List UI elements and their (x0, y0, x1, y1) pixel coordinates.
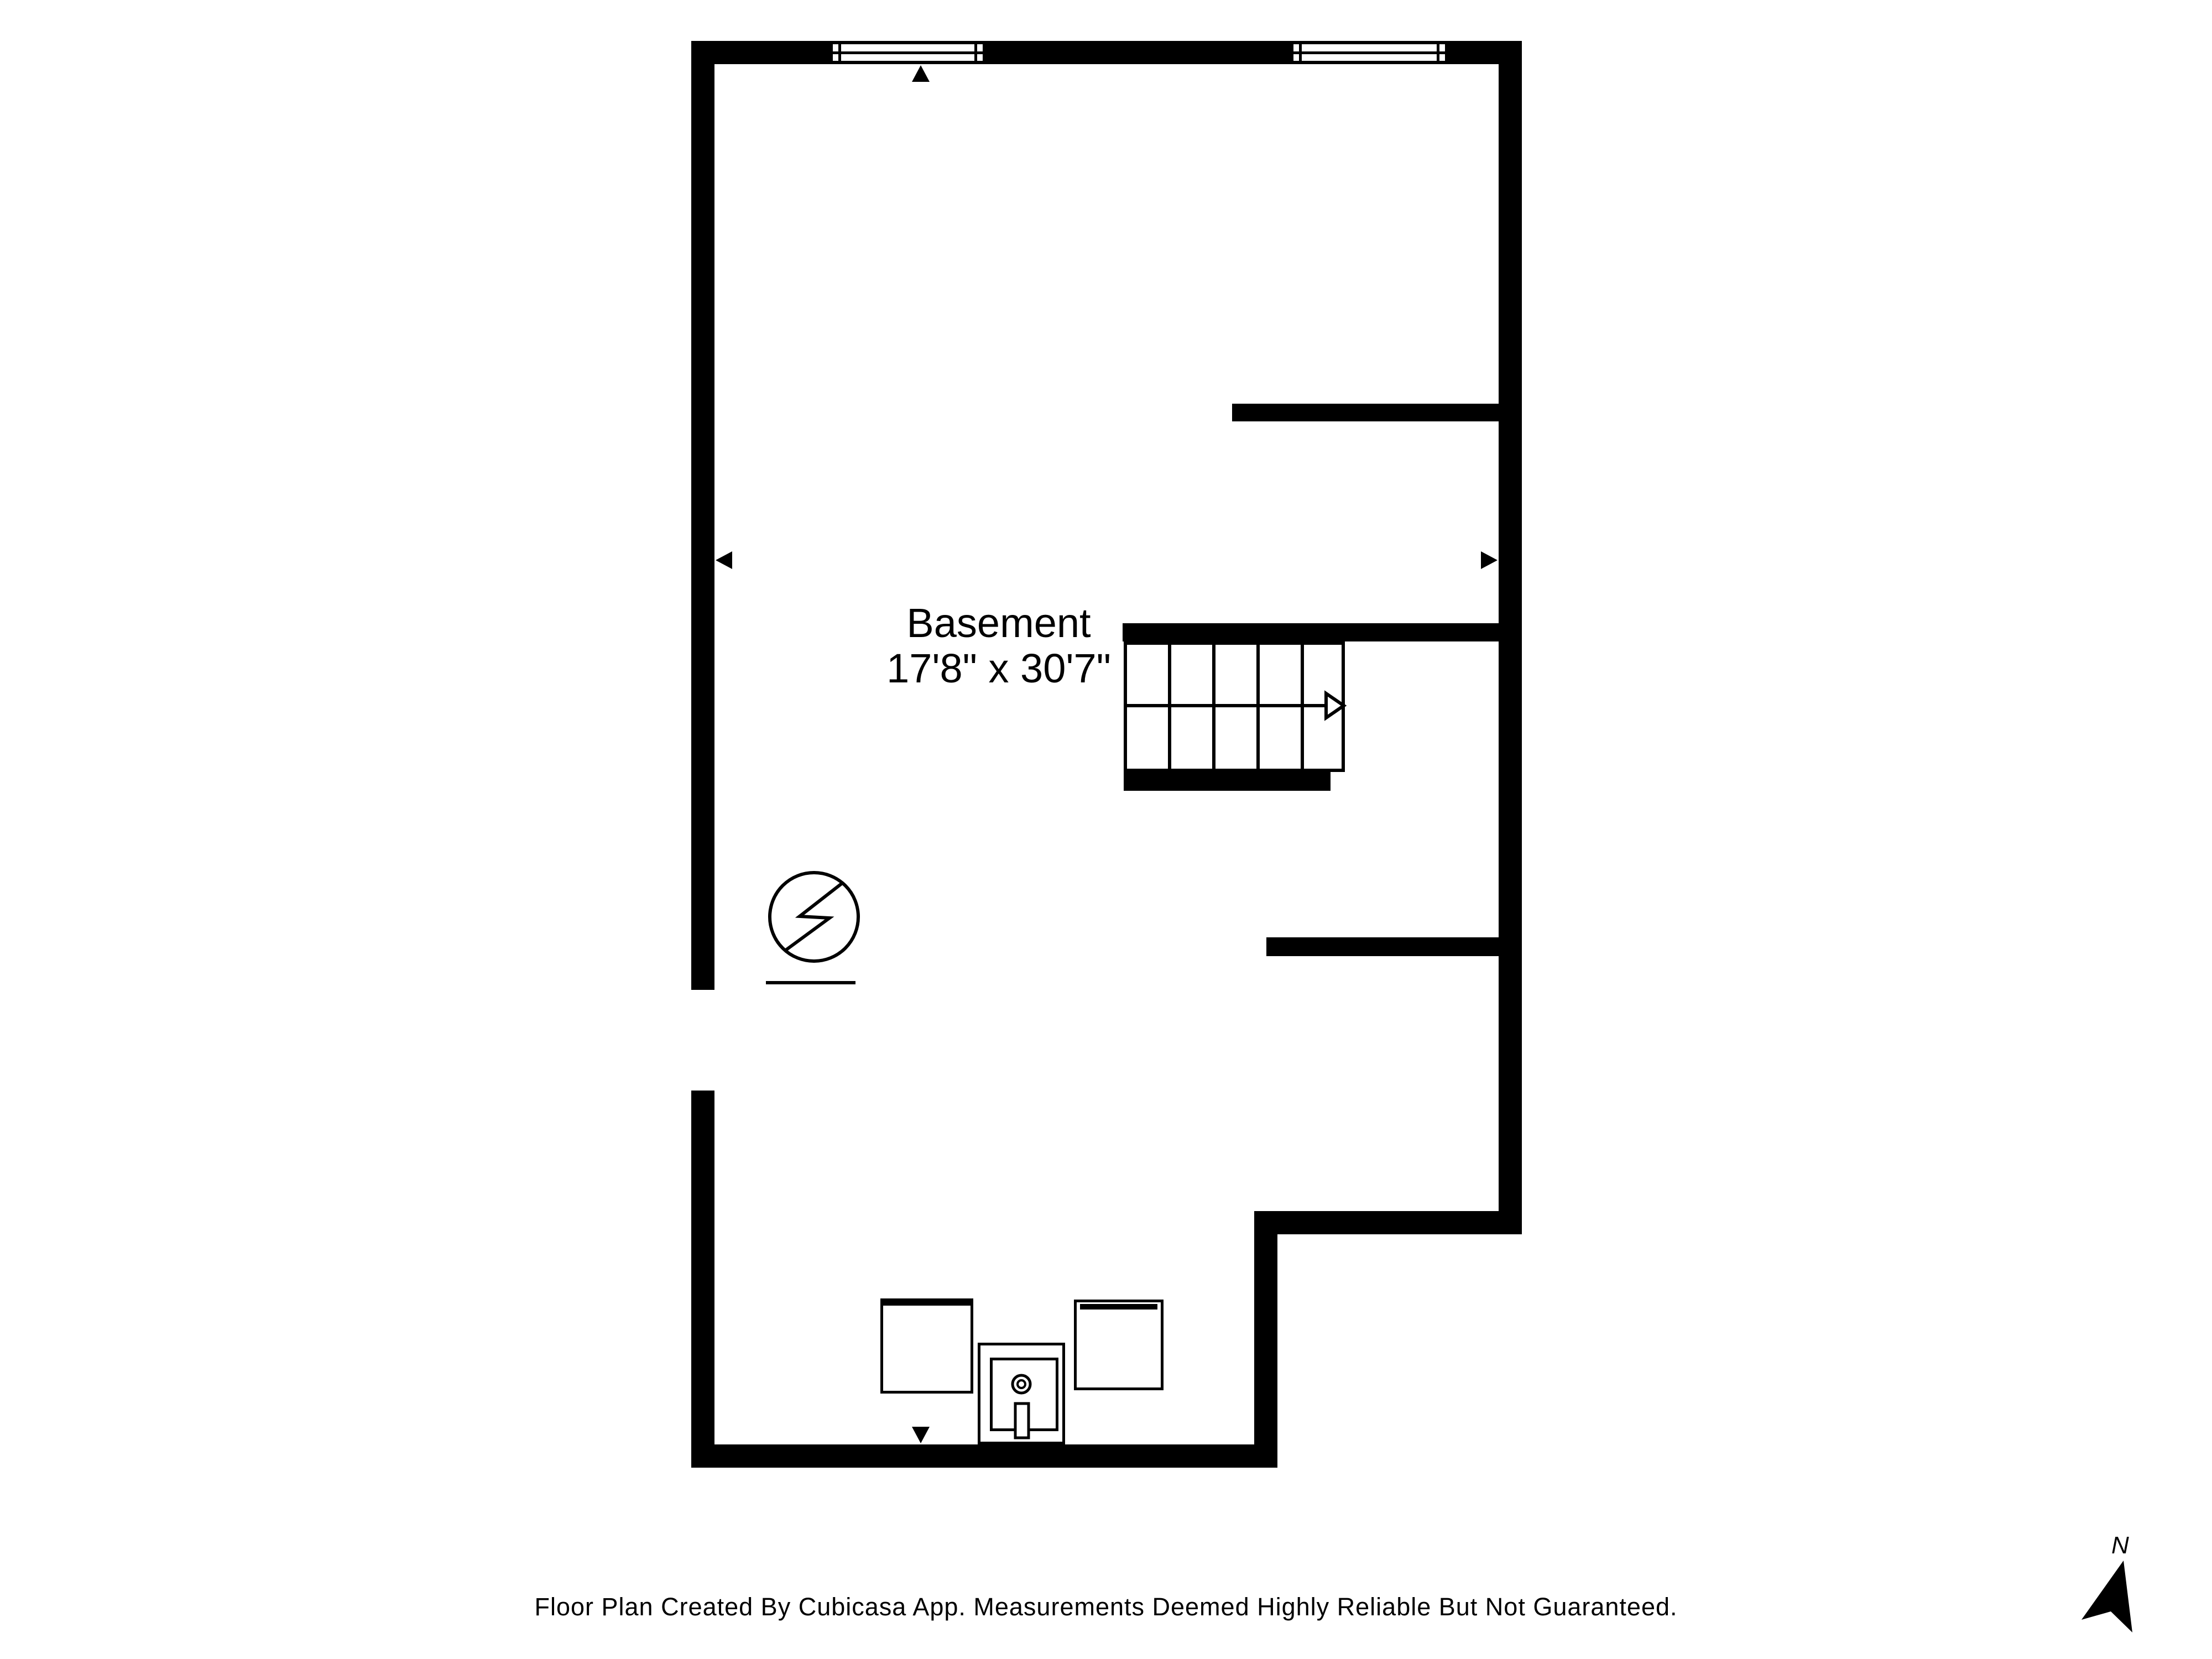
room-name: Basement (830, 601, 1168, 646)
symbol-overlay (0, 0, 2212, 1659)
window-left (831, 42, 985, 63)
stair-riser-line (1212, 645, 1215, 769)
window-sash-line (833, 51, 983, 54)
wall-step-vertical (1254, 1211, 1277, 1468)
wall-left-upper (691, 41, 714, 990)
wall-step-horizontal (1254, 1211, 1522, 1234)
sink-basin (990, 1358, 1058, 1431)
footer-disclaimer: Floor Plan Created By Cubicasa App. Meas… (0, 1593, 2212, 1621)
window-frame-icon (1437, 44, 1439, 61)
stair-riser-line (1301, 645, 1304, 769)
wall-interior-lower (1266, 937, 1499, 956)
wall-stairs-top (1123, 623, 1499, 641)
room-dimensions: 17'8" x 30'7" (830, 646, 1168, 691)
window-frame-icon (974, 44, 977, 61)
window-right (1291, 42, 1447, 63)
appliance-left (880, 1298, 973, 1394)
electrical-panel-icon (766, 873, 858, 983)
utility-sink-icon (978, 1343, 1065, 1444)
compass-label: N (2111, 1532, 2129, 1559)
measure-arrow-up-icon (912, 65, 930, 82)
door-opening (691, 990, 714, 1091)
stair-riser-line (1168, 645, 1171, 769)
room-label: Basement 17'8" x 30'7" (830, 601, 1168, 691)
wall-interior-upper (1232, 404, 1499, 421)
wall-under-stairs (1124, 772, 1331, 791)
measure-arrow-right-icon (1481, 551, 1498, 569)
window-frame-icon (1299, 44, 1302, 61)
wall-bottom (691, 1444, 1277, 1468)
floor-plan: Basement 17'8" x 30'7" (0, 0, 2212, 1659)
measure-arrow-down-icon (912, 1427, 930, 1443)
appliance-top-line (1080, 1304, 1157, 1310)
stair-riser-line (1256, 645, 1260, 769)
wall-left-lower (691, 1091, 714, 1468)
window-frame-icon (838, 44, 841, 61)
wall-right (1499, 41, 1522, 1234)
window-sash-line (1293, 51, 1445, 54)
appliance-right (1074, 1300, 1164, 1390)
measure-arrow-left-icon (716, 551, 732, 569)
